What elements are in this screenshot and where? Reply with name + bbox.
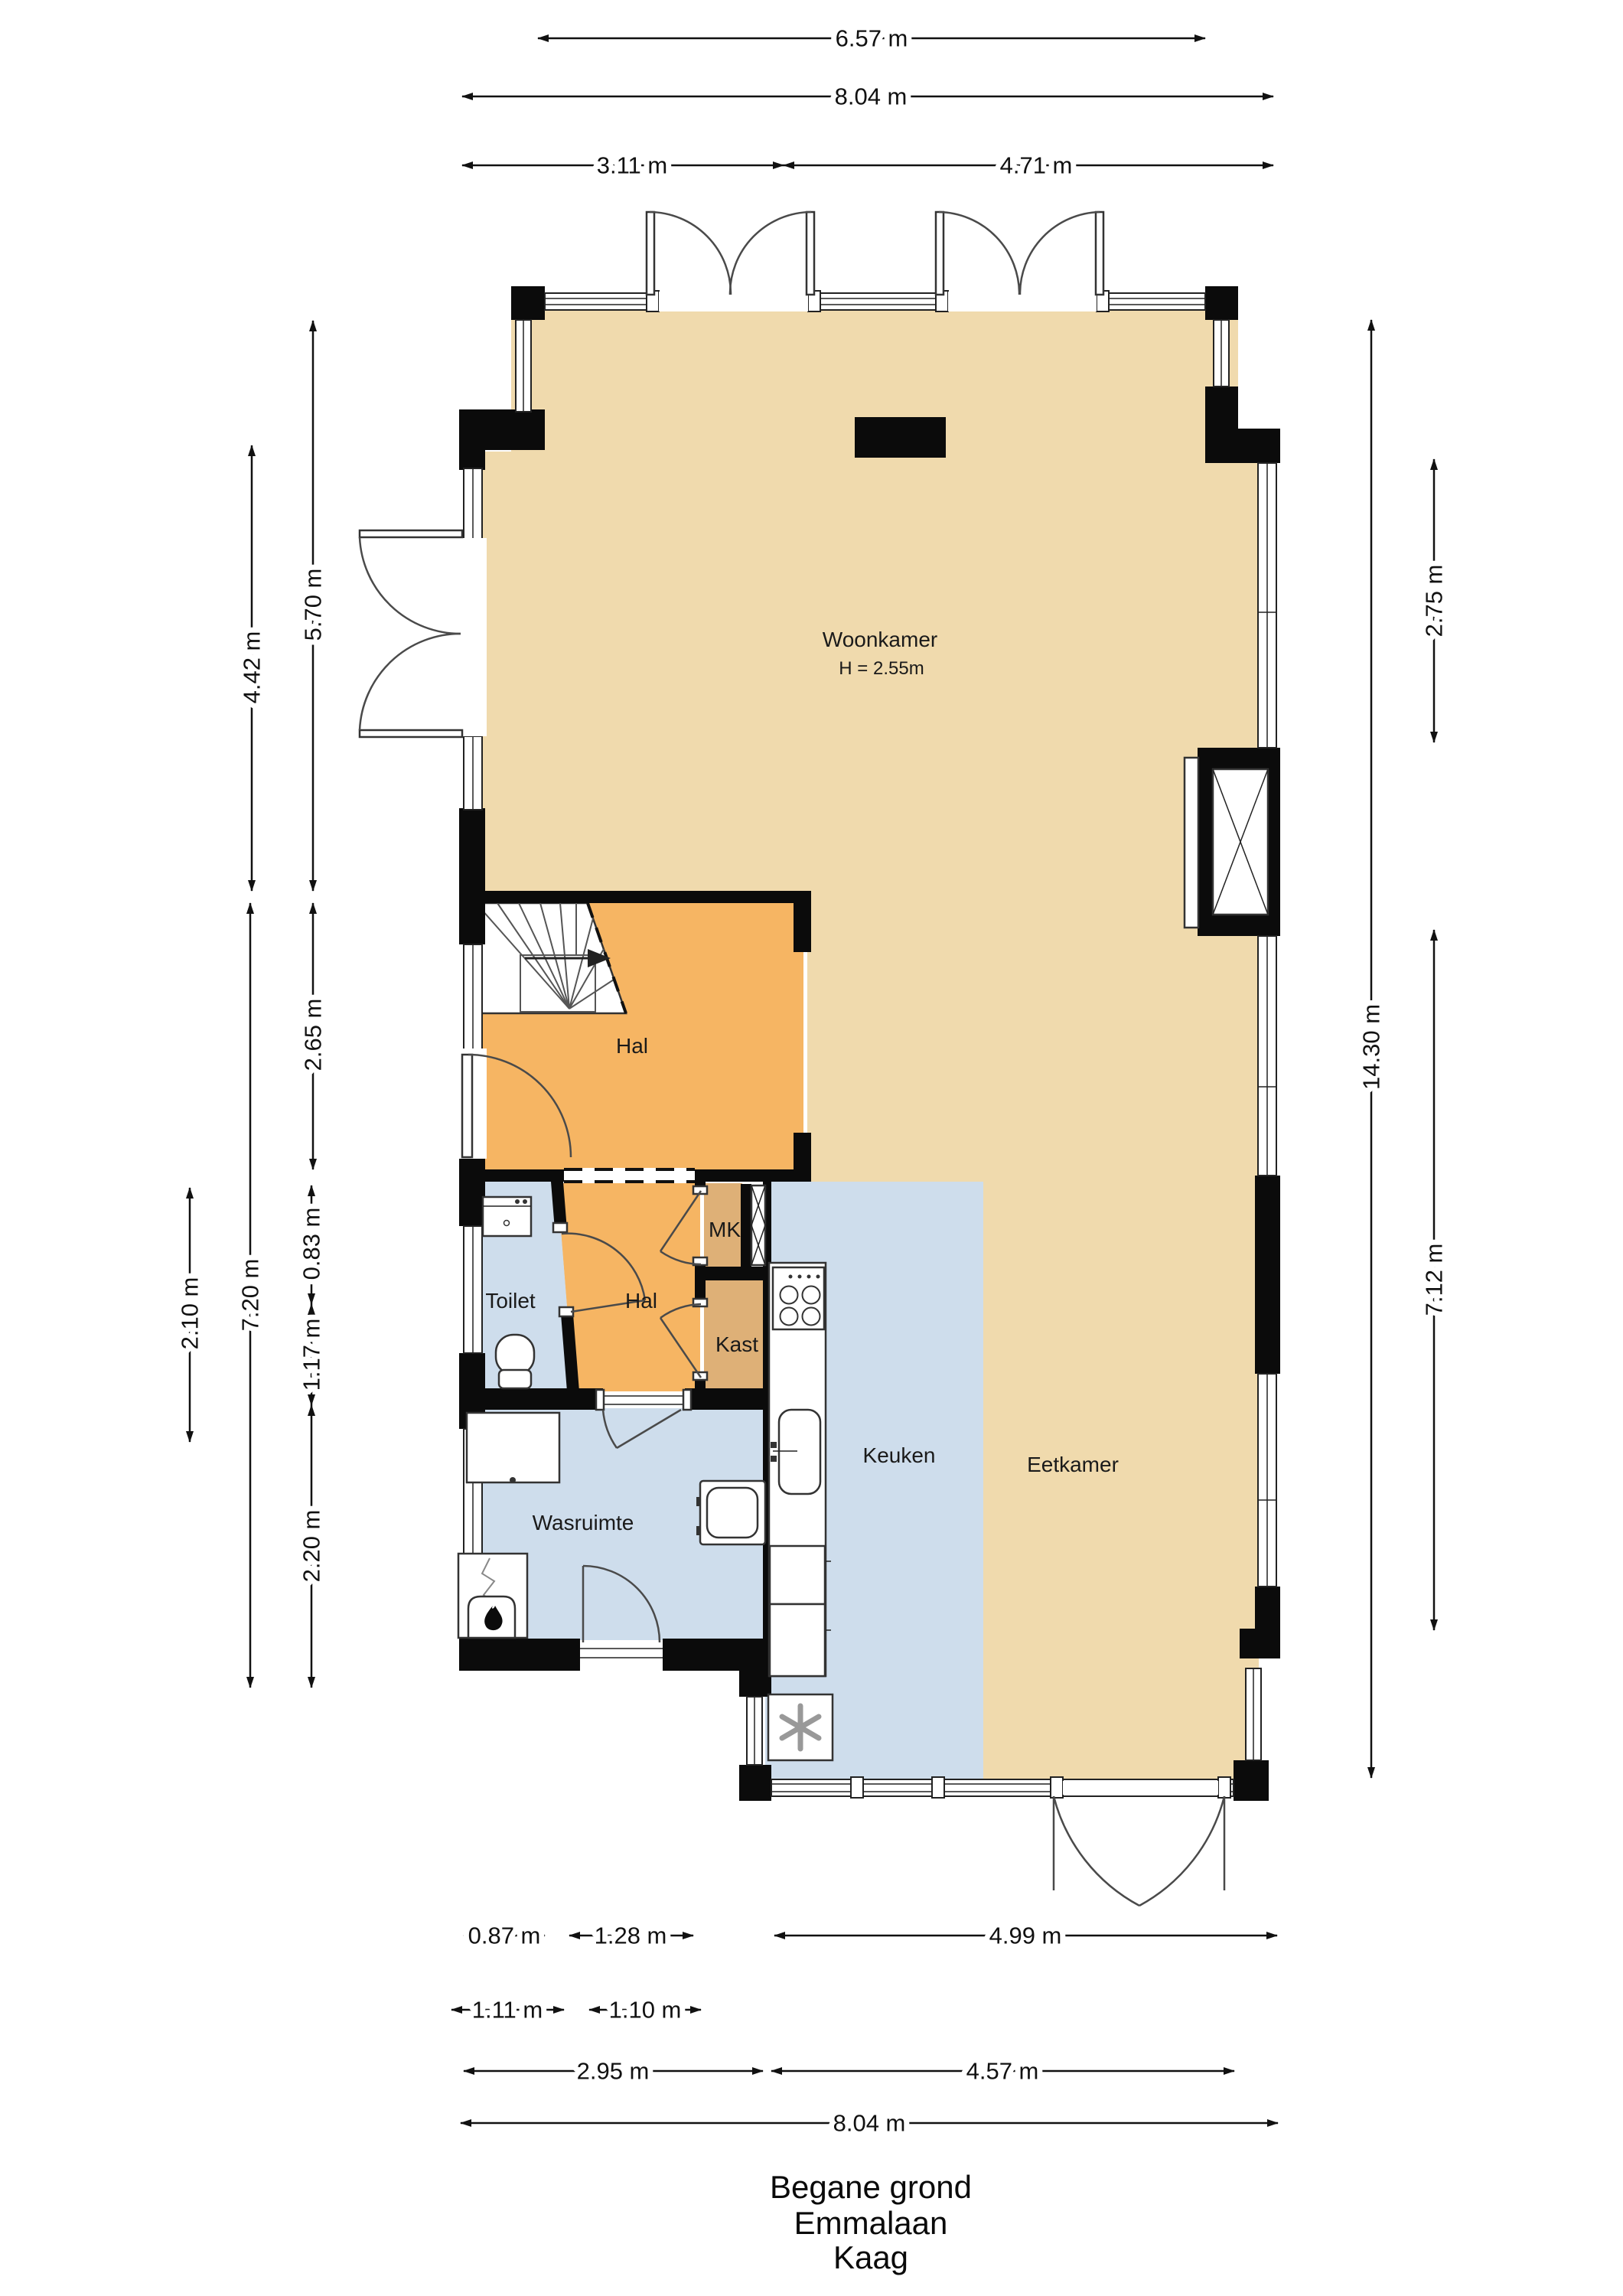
dim-left-570: 5.70 m [300,569,327,641]
title-city: Kaag [833,2239,908,2275]
label-wasruimte: Wasruimte [533,1511,634,1534]
dim-top-4: 4.71 m [1000,152,1073,179]
wall-jog-right-a [1205,386,1238,432]
dim-bottom-111: 1.11 m [472,1997,543,2024]
dim-left-265: 2.65 m [300,999,327,1071]
floor-plan-svg: 6.57 m 8.04 m 3.11 m 4.71 m 5.70 m 4.42 … [0,0,1623,2296]
title-block: Begane grond Emmalaan Kaag [770,2169,972,2275]
dim-bottom-087: 0.87 m [468,1923,541,1949]
label-kast: Kast [715,1332,758,1356]
cupboard [467,1413,559,1482]
label-hal-onder: Hal [625,1289,657,1313]
kitchen-sink [779,1410,820,1494]
dim-top-1: 6.57 m [836,25,908,52]
chimney-mantel [1185,758,1198,928]
duct-shaft [751,1186,765,1265]
label-woonkamer-height: H = 2.55m [839,658,924,679]
dim-top-3: 3.11 m [597,152,667,179]
floor-plan-page: 6.57 m 8.04 m 3.11 m 4.71 m 5.70 m 4.42 … [0,0,1623,2296]
label-hal-boven: Hal [616,1034,648,1058]
wall-jog-bottom-right [1240,1629,1280,1658]
toilet-wc [496,1335,534,1375]
label-keuken: Keuken [863,1443,936,1467]
dim-bottom-110: 1.10 m [609,1997,682,2024]
kitchen-appliance-1 [770,1546,825,1604]
title-street: Emmalaan [794,2205,948,2241]
label-woonkamer: Woonkamer [823,628,937,651]
dim-left-117: 1.17 m [298,1319,325,1391]
wall-jog-left [459,409,545,450]
wall-jog-right-b [1205,429,1280,463]
label-eetkamer: Eetkamer [1027,1453,1119,1476]
dim-left-220: 2.20 m [298,1510,325,1583]
dim-top-2: 8.04 m [835,83,908,110]
dim-left-083: 0.83 m [298,1208,325,1280]
dim-bottom-804: 8.04 m [833,2110,906,2137]
dim-right-712: 7.12 m [1421,1244,1448,1316]
title-floor: Begane grond [770,2169,972,2205]
dim-left-442: 4.42 m [239,631,266,704]
label-toilet: Toilet [485,1289,536,1313]
dim-bottom-457: 4.57 m [966,2058,1039,2085]
dim-left-210: 2.10 m [177,1277,204,1350]
room-floors [481,309,1276,1783]
dim-left-720: 7.20 m [237,1259,264,1332]
dim-bottom-295: 2.95 m [577,2058,650,2085]
dim-right-1430: 14.30 m [1358,1004,1385,1090]
wall-corner-top-left [511,286,545,320]
dim-bottom-128: 1.28 m [595,1923,667,1949]
dim-right-275: 2.75 m [1421,565,1448,638]
kitchen-appliance-2 [770,1604,825,1676]
label-mk: MK [709,1218,741,1241]
pillar-woonkamer [855,417,946,458]
wall-corner-keuken [739,1765,771,1801]
wall-corner-bottom-right [1234,1760,1269,1801]
dim-bottom-499: 4.99 m [989,1923,1062,1949]
wall-corner-top-right [1205,286,1238,320]
